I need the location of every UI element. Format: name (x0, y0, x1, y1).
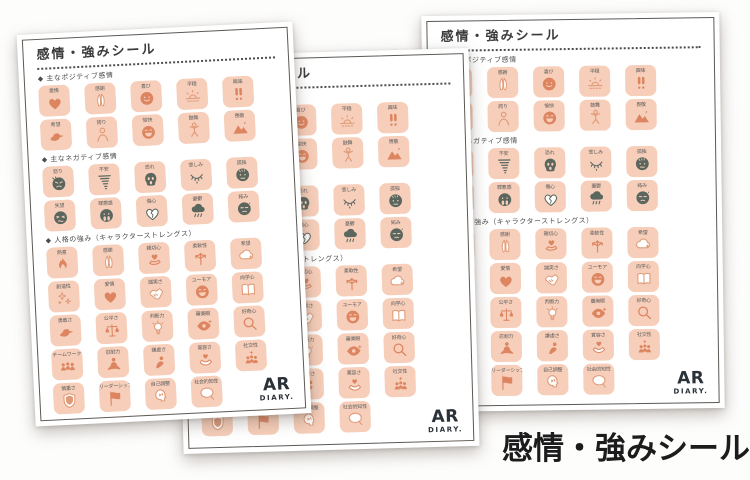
sticker-bird: 希望 (40, 118, 72, 150)
sticker-label: 傷心 (535, 183, 566, 190)
disappoint-icon (51, 209, 70, 228)
sticker-label: 愉快 (132, 115, 163, 124)
logo-ar-text: AR (673, 370, 708, 387)
bird-icon (47, 128, 66, 147)
flag-icon (106, 389, 125, 408)
cloud-icon (634, 236, 652, 254)
envy-icon (234, 200, 253, 219)
sticker-team: チームワーク (51, 348, 83, 380)
rain-cloud-icon (188, 202, 207, 221)
sticker-label: 畏敬 (378, 137, 409, 145)
sticker-label: 平穏 (176, 79, 207, 88)
sticker-label: 平穏 (331, 104, 362, 112)
sticker-angry: 怒り (42, 165, 74, 197)
team-icon (58, 358, 77, 377)
sticker-scales: 公平さ (490, 297, 521, 328)
tornado-icon (95, 173, 114, 192)
logo-diary-text: DIARY. (673, 388, 708, 395)
bow-icon (150, 353, 169, 372)
sticker-label: 鼓舞 (178, 113, 209, 122)
sticker-magnifier: 好奇心 (233, 305, 265, 337)
sticker-broken-heart: 傷心 (535, 181, 566, 212)
sticker-label: 恐れ (134, 162, 165, 171)
sticker-label: 自己調整 (537, 366, 568, 373)
sticker-arrows: 柔軟性 (335, 265, 367, 297)
logo-diary-text: DIARY. (428, 426, 463, 434)
sticker-pray: 感謝 (92, 244, 124, 276)
sticker-handshake: 誠実さ (140, 276, 172, 308)
sticker-label: 社会的知性 (339, 402, 370, 410)
sticker-exclaim: 興味 (625, 65, 656, 96)
book-icon (238, 281, 257, 300)
sticker-label: 自己調整 (145, 379, 176, 388)
tear-eye-icon (340, 193, 358, 211)
sticker-cloud: 希望 (230, 237, 262, 269)
sticker-label: 妬み (380, 218, 411, 226)
eye-icon (589, 305, 607, 323)
sticker-label: 誠実さ (536, 264, 567, 271)
sticker-book: 向学心 (231, 271, 263, 303)
sticker-label: 好奇心 (628, 296, 659, 303)
sticker-bubble: 社会的知性 (583, 363, 614, 394)
sticker-scales: 公平さ (95, 312, 127, 344)
sticker-label: 感謝 (92, 246, 123, 255)
sticker-label: 忍耐力 (97, 347, 128, 356)
sticker-laugh: ユーモア (582, 261, 613, 292)
sticker-laugh: 愉快 (533, 100, 564, 131)
magnifier-icon (390, 341, 408, 359)
sticker-label: 勇敢さ (49, 316, 80, 325)
eye-icon (194, 317, 213, 336)
sticker-sheet-page-left: 感情・強みシール◆ 主なポジティブ感情愛情感謝喜び平穏興味希望誇り愉快鼓舞畏敬◆… (17, 21, 312, 426)
sticker-label: 公平さ (490, 298, 521, 305)
flame-icon (53, 256, 72, 275)
sticker-label: 喜び (130, 81, 161, 90)
handshake-icon (542, 271, 560, 289)
sticker-mountain: 畏敬 (625, 99, 656, 130)
sticker-label: 憂鬱 (581, 182, 612, 189)
heart-icon (45, 94, 64, 113)
envy-icon (387, 226, 405, 244)
sticker-hold-heart: 寛容さ (189, 341, 221, 373)
laugh-icon (139, 123, 158, 142)
arrows-icon (588, 237, 606, 255)
laugh-icon (343, 308, 361, 326)
sticker-label: 興味 (222, 77, 253, 86)
sticker-bow: 謙虚さ (143, 344, 175, 376)
product-photo-background: 感情・強みシール 感情・強みシール◆ 主なポジティブ感情愛情感謝喜び平穏興味希望… (0, 0, 750, 480)
sticker-label: 希望 (627, 228, 658, 235)
sticker-bubble: 社会的知性 (191, 375, 223, 407)
sticker-mountain: 畏敬 (224, 109, 256, 141)
sticker-scream: 恐れ (134, 161, 166, 193)
group-icon (635, 338, 653, 356)
sticker-envy: 妬み (380, 217, 412, 249)
sticker-envy: 妬み (228, 190, 260, 222)
mountain-icon (230, 119, 249, 138)
sticker-label: 審美眼 (337, 334, 368, 342)
laugh-icon (540, 109, 558, 127)
meditate-icon (104, 355, 123, 374)
sticker-bulb: 判断力 (141, 310, 173, 342)
sticker-group: 社交性 (384, 366, 416, 398)
product-title: 感情・強みシール (502, 423, 750, 468)
sticker-label: 興味 (377, 103, 408, 111)
sticker-label: 向学心 (232, 273, 263, 282)
sticker-label: リーダーシップ (491, 366, 522, 373)
sticker-label: 向学心 (382, 299, 413, 307)
guilty-icon (495, 191, 513, 209)
sticker-label: 希望 (40, 120, 71, 129)
hold-heart-icon (196, 351, 215, 370)
sticker-pray: 感謝 (84, 82, 116, 114)
sticker-label: 感謝 (489, 230, 520, 237)
sticker-person: 誇り (487, 101, 518, 132)
sticker-label: 創造性 (48, 282, 79, 291)
sticker-label: 畏敬 (224, 111, 255, 120)
sticker-label: 不安 (88, 165, 119, 174)
sticker-label: 熱意 (46, 248, 77, 257)
heart-icon (101, 287, 120, 306)
sticker-label: 孤独 (226, 158, 257, 167)
sticker-hand-heart: 親切心 (535, 228, 566, 259)
sticker-bulb: 判断力 (536, 296, 567, 327)
sticker-label: 興味 (625, 66, 656, 73)
sticker-book: 向学心 (628, 261, 659, 292)
sticker-label: 感謝 (84, 84, 115, 93)
sticker-eye: 審美眼 (582, 295, 613, 326)
flag-icon (498, 374, 516, 392)
sticker-label: 畏敬 (625, 100, 656, 107)
sticker-label: 社会的知性 (583, 365, 614, 372)
sticker-label: 好奇心 (233, 307, 264, 316)
sticker-tornado: 不安 (88, 163, 120, 195)
bird-icon (56, 324, 75, 343)
jump-icon (586, 109, 604, 127)
arrows-icon (191, 249, 210, 268)
sticker-grid: 熱意感謝親切心柔軟性希望創造性愛情誠実さユーモア向学心勇敢さ公平さ判断力審美眼好… (443, 226, 705, 397)
sticker-label: 謙虚さ (143, 345, 174, 354)
sticker-head: 自己調整 (537, 364, 568, 395)
exclaim-icon (384, 111, 402, 129)
sticker-disappoint: 失望 (44, 199, 76, 231)
sticker-label: 社会的知性 (191, 377, 222, 386)
sheet-frame: 感情・強みシール◆ 主なポジティブ感情愛情感謝喜び平穏興味希望誇り愉快鼓舞畏敬◆… (22, 27, 306, 422)
ar-diary-logo: ARDIARY. (673, 370, 708, 395)
broken-heart-icon (541, 190, 559, 208)
sticker-label: 罪悪感 (489, 183, 520, 190)
sticker-label: ユーモア (582, 263, 613, 270)
guilty-icon (97, 206, 116, 225)
sticker-label: 寛容さ (189, 343, 220, 352)
exclaim-icon (632, 74, 650, 92)
sticker-rain-cloud: 憂鬱 (334, 218, 366, 250)
sticker-laugh: ユーモア (336, 299, 368, 331)
head-icon (151, 387, 170, 406)
scream-icon (141, 170, 160, 189)
sticker-hold-heart: 寛容さ (338, 367, 370, 399)
magnifier-icon (240, 315, 259, 334)
smile-icon (540, 75, 558, 93)
sticker-label: 判断力 (141, 311, 172, 320)
sticker-magnifier: 好奇心 (383, 332, 415, 364)
sticker-label: 平穏 (579, 67, 610, 74)
sticker-gloomy: 孤独 (626, 146, 657, 177)
rain-cloud-icon (341, 227, 359, 245)
sticker-label: 柔軟性 (335, 266, 366, 274)
sticker-heart: 愛情 (94, 278, 126, 310)
sticker-label: 妬み (627, 181, 658, 188)
sticker-hand-heart: 親切心 (138, 242, 170, 274)
bulb-icon (543, 305, 561, 323)
gloomy-icon (386, 192, 404, 210)
sticker-label: 誇り (86, 118, 117, 127)
magnifier-icon (635, 304, 653, 322)
sticker-scream: 恐れ (534, 147, 565, 178)
angry-icon (49, 175, 68, 194)
sticker-label: 憂鬱 (334, 219, 365, 227)
scales-icon (102, 321, 121, 340)
jump-icon (339, 146, 357, 164)
sticker-label: 憂鬱 (182, 194, 213, 203)
sunrise-icon (586, 75, 604, 93)
sticker-exclaim: 興味 (377, 102, 409, 134)
bow-icon (543, 339, 561, 357)
scales-icon (497, 306, 515, 324)
sticker-mountain: 畏敬 (378, 136, 410, 168)
smile-icon (137, 89, 156, 108)
sticker-head: 自己調整 (145, 378, 177, 410)
sticker-hold-heart: 寛容さ (583, 329, 614, 360)
sticker-grid: 熱意感謝親切心柔軟性希望創造性愛情誠実さユーモア向学心勇敢さ公平さ判断力審美眼好… (46, 236, 292, 414)
sticker-label: チームワーク (51, 350, 82, 359)
arrows-icon (342, 274, 360, 292)
sticker-label: 愛情 (94, 279, 125, 288)
sticker-label: 審美眼 (187, 309, 218, 318)
bubble-icon (346, 410, 364, 428)
hold-heart-icon (589, 339, 607, 357)
sticker-tear-eye: 悲しみ (180, 159, 212, 191)
sticker-label: 鼓舞 (332, 138, 363, 146)
sticker-guilty: 罪悪感 (90, 197, 122, 229)
sticker-tear-eye: 悲しみ (333, 184, 365, 216)
head-icon (300, 411, 318, 429)
sticker-label: 謙虚さ (537, 332, 568, 339)
sticker-rain-cloud: 憂鬱 (581, 180, 612, 211)
sticker-bird: 勇敢さ (49, 314, 81, 346)
sticker-sunrise: 平穏 (331, 103, 363, 135)
sticker-label: 社交性 (629, 330, 660, 337)
pray-icon (91, 92, 110, 111)
sticker-exclaim: 興味 (222, 75, 254, 107)
sticker-tear-eye: 悲しみ (580, 146, 611, 177)
sticker-guilty: 罪悪感 (489, 182, 520, 213)
sticker-group: 社交性 (629, 329, 660, 360)
hand-heart-icon (542, 237, 560, 255)
sticker-label: 悲しみ (333, 185, 364, 193)
sticker-label: 誇り (487, 102, 518, 109)
book-icon (389, 307, 407, 325)
sticker-label: 寛容さ (583, 331, 614, 338)
sticker-label: ユーモア (336, 300, 367, 308)
sticker-label: 忍耐力 (491, 332, 522, 339)
sticker-eye: 審美眼 (337, 333, 369, 365)
bubble-icon (197, 385, 216, 404)
sticker-label: 悲しみ (180, 160, 211, 169)
jump-icon (185, 121, 204, 140)
bubble-icon (590, 373, 608, 391)
sticker-label: 感謝 (487, 68, 518, 75)
sticker-label: 傷心 (136, 196, 167, 205)
sticker-label: 公平さ (95, 313, 126, 322)
sticker-smile: 喜び (130, 80, 162, 112)
scream-icon (541, 156, 559, 174)
pray-icon (496, 238, 514, 256)
sticker-label: 親切心 (138, 243, 169, 252)
sticker-label: 向学心 (628, 262, 659, 269)
sticker-label: 不安 (488, 149, 519, 156)
sticker-label: 恐れ (534, 149, 565, 156)
sticker-label: 愛情 (38, 86, 69, 95)
sticker-flag: リーダーシップ (491, 365, 522, 396)
sticker-label: 慎重さ (53, 384, 84, 393)
sticker-label: 社交性 (235, 341, 266, 350)
sticker-label: 孤独 (379, 184, 410, 192)
sticker-grid: 怒り不安恐れ悲しみ孤独失望罪悪感傷心憂鬱妬み (42, 155, 283, 232)
tear-eye-icon (587, 156, 605, 174)
ar-diary-logo: ARDIARY. (259, 376, 295, 403)
sticker-label: 孤独 (626, 147, 657, 154)
sticker-cloud: 希望 (381, 264, 413, 296)
sunrise-icon (183, 87, 202, 106)
sticker-label: 罪悪感 (90, 199, 121, 208)
tornado-icon (495, 157, 513, 175)
sticker-label: 寛容さ (338, 368, 369, 376)
sticker-label: 柔軟性 (184, 241, 215, 250)
sticker-label: 妬み (228, 192, 259, 201)
sticker-flag: リーダーシップ (99, 380, 131, 412)
logo-ar-text: AR (259, 376, 295, 395)
sticker-label: 希望 (381, 265, 412, 273)
logo-ar-text: AR (427, 408, 462, 426)
person-icon (494, 110, 512, 128)
gloomy-icon (233, 166, 252, 185)
handshake-icon (147, 285, 166, 304)
meditate-icon (497, 340, 515, 358)
shield-icon (60, 392, 79, 411)
sticker-label: 喜び (533, 68, 564, 75)
sticker-flame: 熱意 (46, 246, 78, 278)
sunrise-icon (338, 112, 356, 130)
sticker-label: 判断力 (536, 298, 567, 305)
sticker-laugh: ユーモア (186, 273, 218, 305)
sticker-shield: 慎重さ (53, 382, 85, 414)
pray-icon (99, 253, 118, 272)
sticker-label: リーダーシップ (99, 381, 130, 390)
sticker-arrows: 柔軟性 (581, 227, 612, 258)
ar-diary-logo: ARDIARY. (427, 408, 463, 434)
person-icon (93, 126, 112, 145)
sticker-jump: 鼓舞 (579, 99, 610, 130)
sticker-cloud: 希望 (627, 227, 658, 258)
sticker-broken-heart: 傷心 (136, 195, 168, 227)
sticker-meditate: 忍耐力 (491, 331, 522, 362)
sticker-pray: 感謝 (487, 67, 518, 98)
heart-icon (496, 272, 514, 290)
sticker-label: ユーモア (186, 275, 217, 284)
sticker-grid: 愛情感謝喜び平穏興味希望誇り愉快鼓舞畏敬 (38, 74, 279, 151)
sticker-jump: 鼓舞 (178, 112, 210, 144)
exclaim-icon (229, 85, 248, 104)
sticker-label: 愛情 (490, 264, 521, 271)
sticker-pray: 感謝 (489, 229, 520, 260)
sticker-gloomy: 孤独 (226, 156, 258, 188)
sticker-smile: 喜び (533, 66, 564, 97)
cloud-icon (388, 273, 406, 291)
envy-icon (633, 189, 651, 207)
hold-heart-icon (345, 376, 363, 394)
sticker-eye: 審美眼 (187, 307, 219, 339)
sticker-label: 親切心 (535, 230, 566, 237)
bulb-icon (148, 319, 167, 338)
cloud-icon (237, 247, 256, 266)
broken-heart-icon (143, 204, 162, 223)
rain-cloud-icon (587, 190, 605, 208)
sticker-sunrise: 平穏 (579, 65, 610, 96)
sticker-label: 好奇心 (383, 333, 414, 341)
sticker-book: 向学心 (382, 298, 414, 330)
mountain-icon (385, 145, 403, 163)
sticker-bubble: 社会的知性 (339, 401, 371, 433)
sticker-label: 鼓舞 (579, 101, 610, 108)
laugh-icon (588, 271, 606, 289)
sticker-label: 希望 (230, 239, 261, 248)
hand-heart-icon (145, 251, 164, 270)
laugh-icon (192, 283, 211, 302)
sticker-jump: 鼓舞 (332, 137, 364, 169)
group-icon (391, 375, 409, 393)
sticker-label: 失望 (44, 201, 75, 210)
eye-icon (344, 342, 362, 360)
sticker-label: 怒り (42, 167, 73, 176)
gloomy-icon (633, 155, 651, 173)
sticker-grid: 愛情感謝喜び平穏興味希望誇り愉快鼓舞畏敬 (441, 64, 702, 133)
sticker-rain-cloud: 憂鬱 (182, 193, 214, 225)
sticker-arrows: 柔軟性 (184, 240, 216, 272)
tear-eye-icon (187, 168, 206, 187)
sticker-label: 誠実さ (140, 277, 171, 286)
sticker-label: 審美眼 (582, 297, 613, 304)
sticker-sunrise: 平穏 (176, 78, 208, 110)
sticker-envy: 妬み (627, 180, 658, 211)
sticker-heart: 愛情 (38, 84, 70, 116)
book-icon (634, 270, 652, 288)
pray-icon (494, 76, 512, 94)
sticker-bow: 謙虚さ (537, 330, 568, 361)
sticker-laugh: 愉快 (132, 114, 164, 146)
sticker-label: 社交性 (384, 367, 415, 375)
sticker-label: 愉快 (533, 102, 564, 109)
sticker-grid: 怒り不安恐れ悲しみ孤独失望罪悪感傷心憂鬱妬み (442, 145, 703, 214)
sticker-sparkles: 創造性 (48, 280, 80, 312)
head-icon (544, 373, 562, 391)
mountain-icon (632, 108, 650, 126)
sticker-group: 社交性 (235, 339, 267, 371)
sparkles-icon (55, 290, 74, 309)
sticker-label: 柔軟性 (581, 229, 612, 236)
group-icon (242, 349, 261, 368)
sticker-magnifier: 好奇心 (628, 295, 659, 326)
